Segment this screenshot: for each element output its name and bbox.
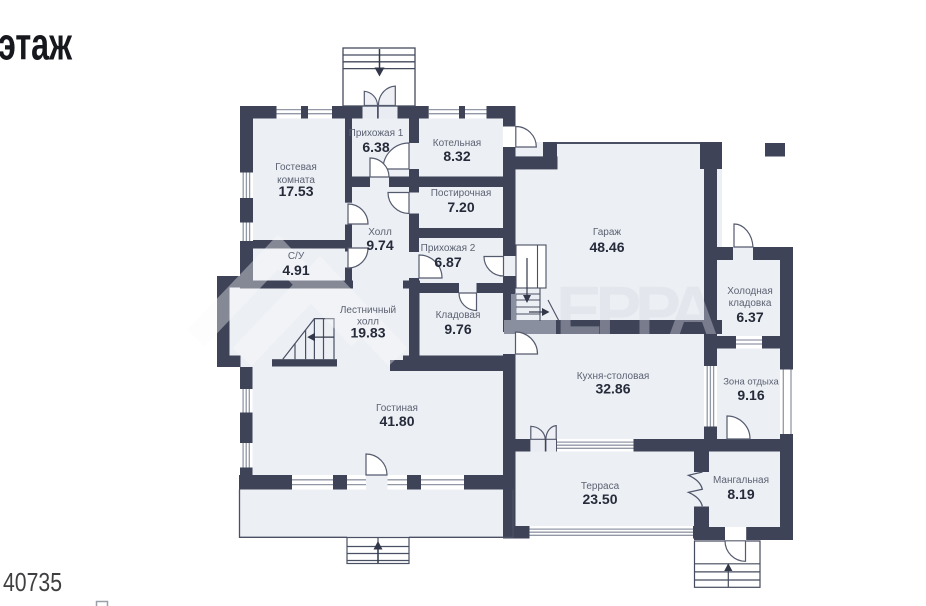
svg-text:Прихожая 2: Прихожая 2 [421, 243, 476, 254]
svg-text:Прихожая 1: Прихожая 1 [349, 128, 404, 139]
svg-text:Гостевая: Гостевая [275, 162, 317, 173]
svg-text:17.53: 17.53 [278, 183, 313, 199]
svg-text:19.83: 19.83 [350, 325, 385, 341]
svg-text:Холодная: Холодная [727, 286, 773, 297]
svg-text:6.38: 6.38 [362, 139, 389, 155]
svg-text:9.76: 9.76 [444, 321, 471, 337]
svg-text:7.20: 7.20 [447, 199, 474, 215]
svg-text:Зона отдыха: Зона отдыха [723, 377, 779, 388]
svg-text:ЕРРА: ЕРРА [556, 272, 718, 349]
svg-text:9.74: 9.74 [366, 237, 393, 253]
svg-text:6.87: 6.87 [434, 254, 461, 270]
svg-text:48.46: 48.46 [589, 239, 624, 255]
svg-text:9.16: 9.16 [737, 387, 764, 403]
svg-text:Лестничный: Лестничный [340, 305, 396, 316]
svg-text:Мангальная: Мангальная [713, 475, 769, 486]
svg-text:Гараж: Гараж [593, 227, 622, 238]
svg-text:С/У: С/У [288, 251, 305, 262]
svg-text:6.37: 6.37 [736, 309, 763, 325]
svg-text:4.91: 4.91 [282, 262, 309, 278]
svg-text:8.19: 8.19 [727, 486, 754, 502]
svg-text:Кладовая: Кладовая [436, 310, 481, 321]
svg-text:Постирочная: Постирочная [431, 188, 492, 199]
svg-text:8.32: 8.32 [443, 148, 470, 164]
svg-text:41.80: 41.80 [379, 413, 414, 429]
svg-text:23.50: 23.50 [582, 491, 617, 507]
svg-text:этаж: этаж [0, 19, 73, 70]
svg-text:40735: 40735 [3, 567, 62, 597]
svg-text:кладовка: кладовка [729, 298, 772, 309]
svg-text:32.86: 32.86 [595, 381, 630, 397]
